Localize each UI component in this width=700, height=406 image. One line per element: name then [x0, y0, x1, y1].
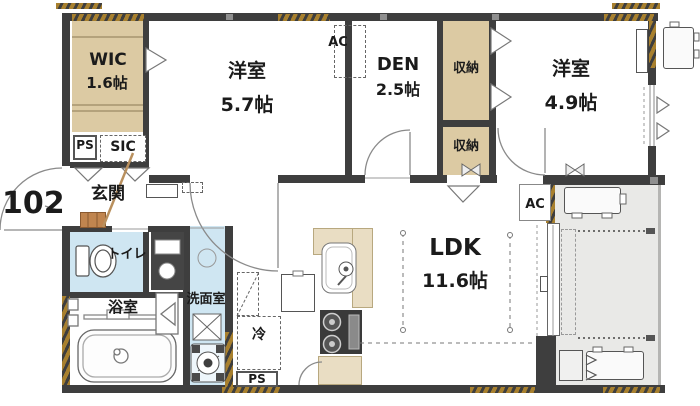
wall-joint — [380, 14, 387, 20]
wall — [489, 21, 496, 183]
window-handle — [540, 276, 548, 292]
den-door-arc — [365, 130, 410, 175]
ac-outdoor-unit — [663, 27, 694, 69]
sic-door-triangle — [75, 168, 102, 181]
storage-lower-door-triangle — [448, 186, 479, 202]
toilet-floor — [70, 232, 143, 292]
insulation-hatch — [278, 14, 330, 21]
bathtub-drain — [114, 349, 120, 355]
exterior-hatch — [612, 3, 660, 9]
wall — [278, 175, 358, 183]
ac-outdoor-unit — [586, 351, 644, 380]
washroom-label: 洗面室 — [182, 293, 230, 307]
wall — [62, 13, 658, 21]
sic-door-triangle — [122, 168, 149, 181]
insulation-hatch — [62, 296, 70, 385]
insulation-hatch — [222, 387, 280, 393]
ac-space-bedroom — [334, 25, 366, 78]
wall — [62, 385, 665, 393]
insulation-hatch — [72, 14, 144, 21]
unit-number-label: 102 — [2, 188, 54, 220]
den-size-label: 2.5帖 — [364, 82, 432, 99]
toilet-label: トイレ — [104, 248, 150, 262]
window-shutter-triangle — [657, 123, 669, 139]
wall — [358, 175, 365, 183]
wall — [543, 175, 665, 185]
wall-joint — [226, 14, 233, 20]
bedroom57-size-label: 5.7帖 — [200, 96, 294, 116]
ac-outdoor-unit — [564, 187, 621, 214]
cupboard-space-dashed — [237, 272, 259, 316]
insulation-hatch — [225, 332, 233, 387]
kitchen-counter — [352, 228, 373, 308]
bedroom49-size-label: 4.9帖 — [524, 94, 618, 114]
shutter-box-dashed — [561, 229, 576, 335]
den-name-label: DEN — [368, 56, 428, 75]
stove — [320, 310, 362, 354]
kitchen-counter-end — [318, 356, 362, 385]
zone-dot — [508, 233, 513, 238]
wall — [62, 13, 70, 166]
wall — [480, 175, 497, 183]
bedroom49-name-label: 洋室 — [526, 60, 616, 80]
ldk-name-label: LDK — [411, 236, 499, 260]
washroom-floor — [190, 226, 225, 393]
exterior-hatch — [56, 3, 102, 9]
ps-upper-label: PS — [73, 139, 97, 152]
refrigerator-label: 冷 — [247, 328, 271, 343]
zone-dot — [508, 328, 513, 333]
bathtub — [78, 330, 176, 382]
ac-ldk-label: AC — [521, 198, 549, 212]
vanity-unit — [151, 232, 184, 290]
wic-door-triangle — [146, 48, 166, 72]
ps-lower-label: PS — [236, 373, 278, 386]
bedroom57-name-label: 洋室 — [202, 62, 292, 82]
wall — [183, 226, 190, 393]
wall-joint — [492, 14, 499, 20]
storage-lower-label: 収納 — [443, 140, 489, 154]
bathtub-drain — [114, 349, 128, 363]
insulation-hatch — [649, 21, 656, 68]
wic-size-label: 1.6帖 — [78, 76, 136, 92]
wall — [443, 120, 489, 127]
refrigerator-space — [237, 316, 281, 370]
bathroom-label: 浴室 — [100, 300, 146, 316]
sic-label: SIC — [100, 140, 146, 155]
hall-cabinet — [146, 184, 178, 198]
water-heater-unit — [559, 350, 583, 381]
window-shutter-triangle — [657, 97, 669, 113]
bedroom49-door-arc — [498, 128, 545, 175]
wic-name-label: WIC — [83, 52, 133, 70]
wall — [143, 232, 149, 292]
storage-upper-label: 収納 — [443, 62, 489, 76]
ac-unit-foot — [694, 33, 699, 41]
bath-door-triangle — [161, 303, 175, 325]
zone-dot — [401, 231, 406, 236]
insulation-hatch — [470, 387, 535, 393]
bedroom49-window — [648, 85, 656, 146]
ac-bedroom-label: AC — [324, 36, 352, 50]
ac-indoor-unit — [636, 29, 648, 73]
wall — [536, 336, 556, 385]
insulation-hatch — [603, 387, 660, 393]
hall-dashed-cabinet — [182, 182, 203, 193]
wall — [70, 162, 145, 168]
cupboard — [281, 274, 315, 312]
ac-unit-foot — [694, 50, 699, 58]
bath-folding-door — [156, 293, 178, 334]
insulation-hatch — [604, 14, 654, 21]
wall-joint — [650, 177, 658, 184]
entrance-step — [80, 212, 106, 228]
bathtub-inner — [83, 335, 171, 377]
ldk-size-label: 11.6帖 — [403, 272, 507, 292]
entrance-label: 玄関 — [76, 186, 140, 204]
wall — [410, 175, 447, 183]
zone-dot — [401, 328, 406, 333]
floorplan-canvas: 102 WIC 1.6帖 洋室 5.7帖 DEN 2.5帖 収納 収納 洋室 4… — [0, 0, 700, 406]
ldk-window — [547, 223, 560, 336]
